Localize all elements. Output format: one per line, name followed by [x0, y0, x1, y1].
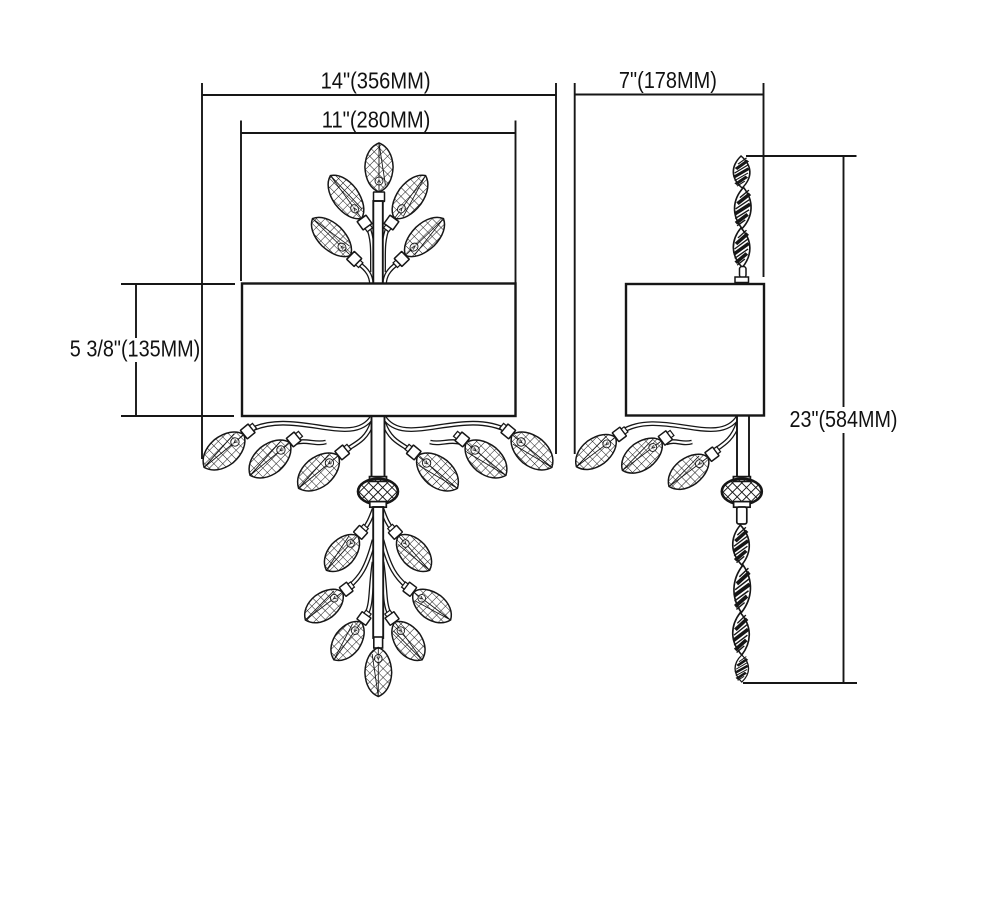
svg-text:23"(584MM): 23"(584MM): [790, 406, 898, 432]
svg-text:5 3/8"(135MM): 5 3/8"(135MM): [70, 336, 201, 362]
svg-text:7"(178MM): 7"(178MM): [619, 67, 717, 93]
svg-text:14"(356MM): 14"(356MM): [321, 68, 431, 94]
svg-text:11"(280MM): 11"(280MM): [322, 106, 431, 132]
